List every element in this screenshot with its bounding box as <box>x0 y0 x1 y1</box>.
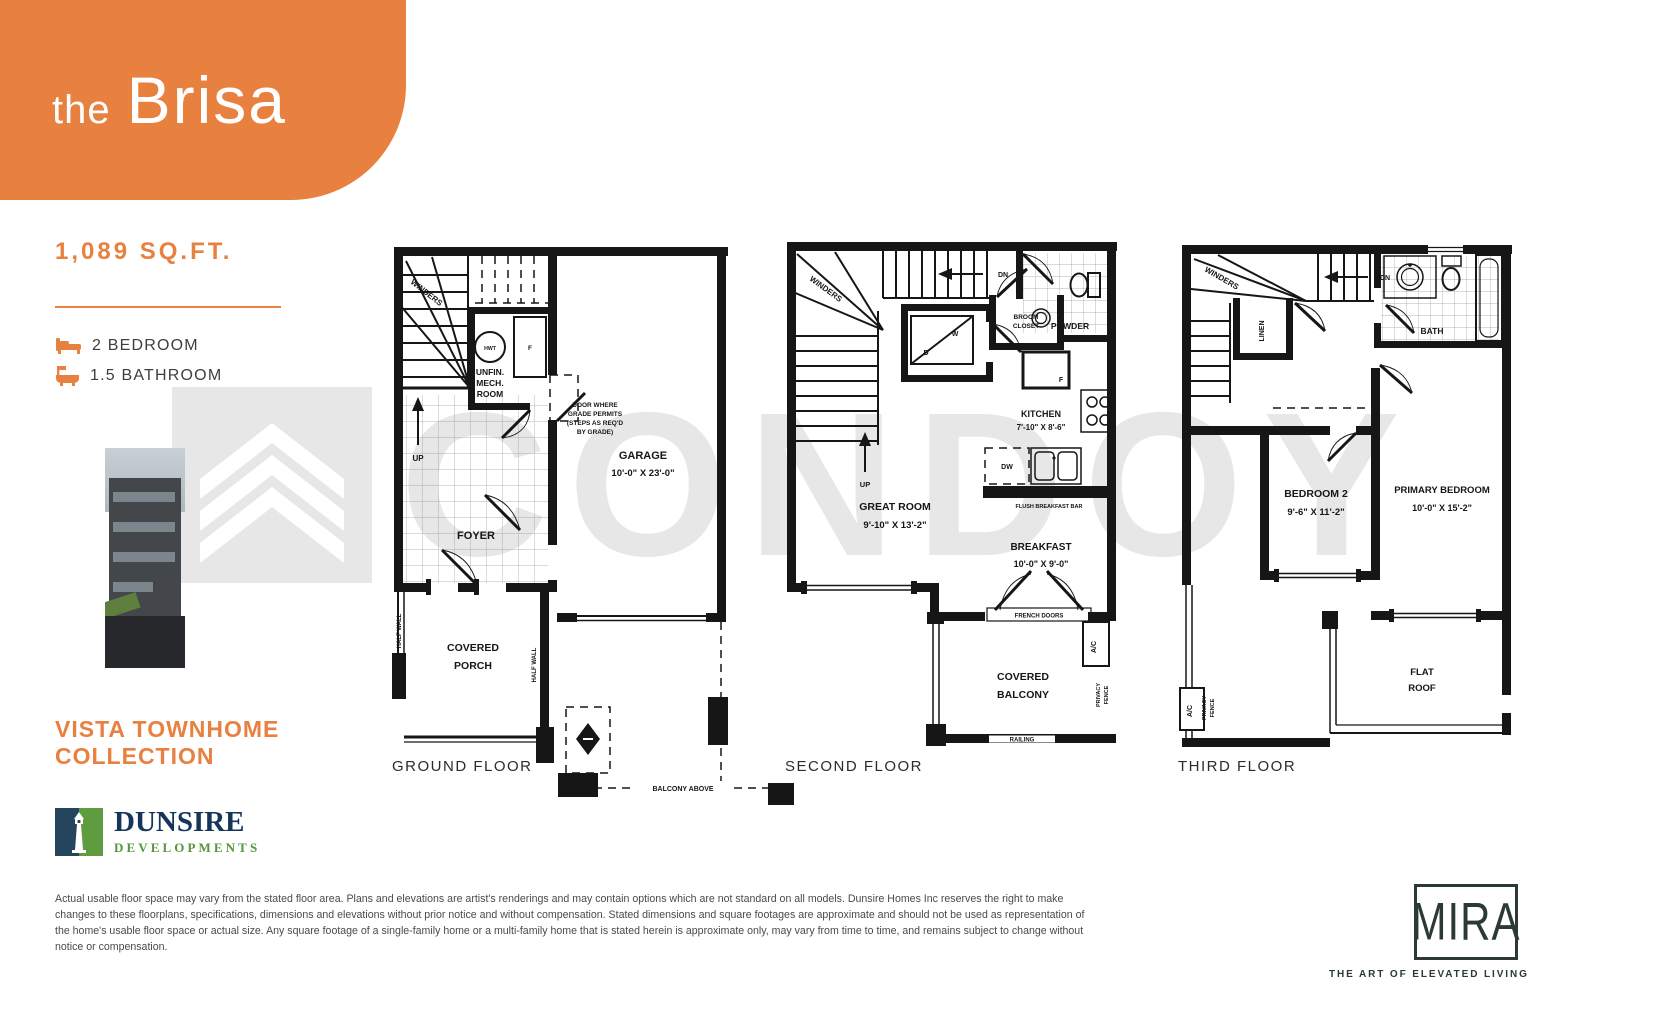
dn-label: DN <box>1380 275 1390 282</box>
covered-balcony: RAILING A/C PRIVACY FENCE COVERED BALCON… <box>926 612 1116 746</box>
up-label: UP <box>412 454 424 463</box>
linen-label: LINEN <box>1259 321 1266 342</box>
privacy-label-1: PRIVACY <box>1202 696 1208 720</box>
kitchen-dim: 7'-10" X 8'-6" <box>1017 423 1066 432</box>
second-floor-plan: DN WINDERS UP W D <box>783 240 1123 755</box>
balcony-label-2: BALCONY <box>997 689 1049 701</box>
ground-floor-caption: GROUND FLOOR <box>392 758 533 775</box>
grade-note-1: DOOR WHERE <box>572 402 618 409</box>
condoy-logo-icon <box>172 387 372 583</box>
balcony-above-label: BALCONY ABOVE <box>652 786 713 793</box>
fridge-label: F <box>1059 377 1064 384</box>
porch-label-1: COVERED <box>447 642 499 654</box>
kitchen-label: KITCHEN <box>1021 409 1061 419</box>
photo-window-band <box>113 522 175 532</box>
up-label: UP <box>860 480 870 489</box>
dryer-label: D <box>923 350 928 357</box>
square-footage: 1,089 SQ.FT. <box>55 238 232 266</box>
developer-wordmark: DUNSIRE DEVELOPMENTS <box>114 808 260 856</box>
second-stairs: DN WINDERS UP <box>793 251 1008 489</box>
primary-label: PRIMARY BEDROOM <box>1394 485 1490 496</box>
kitchen: F KITCHEN 7'-10" X 8'-6" DW FLUSH BREAKF… <box>983 352 1115 510</box>
bedroom-spec-label: 2 BEDROOM <box>92 337 199 355</box>
balcony-above-outline: BALCONY ABOVE <box>558 622 794 805</box>
bathroom-spec: 1.5 BATHROOM <box>55 365 222 386</box>
roof-strip: A/C PRIVACY FENCE <box>1180 585 1330 747</box>
mira-tagline: THE ART OF ELEVATED LIVING <box>1329 969 1529 980</box>
mech-label-3: ROOM <box>477 389 503 399</box>
developer-name: DUNSIRE <box>114 808 260 837</box>
privacy-label-2: FENCE <box>1104 685 1110 704</box>
photo-garage-base <box>105 616 185 668</box>
grade-note-4: BY GRADE) <box>577 429 613 436</box>
mira-tagline-row: THE ART OF ELEVATED LIVING <box>1322 969 1518 980</box>
mira-brand: MIRA THE ART OF ELEVATED LIVING <box>1322 884 1518 980</box>
mech-room: HWT F UNFIN. MECH. ROOM <box>475 317 546 399</box>
mira-logo-box: MIRA <box>1414 884 1518 960</box>
collection-line1: VISTA TOWNHOME <box>55 716 279 743</box>
primary-dim: 10'-0" X 15'-2" <box>1412 503 1472 513</box>
developer-subtitle: DEVELOPMENTS <box>114 840 260 856</box>
model-header: the Brisa <box>0 0 406 200</box>
privacy-label-1: PRIVACY <box>1096 683 1102 707</box>
garage-label: GARAGE <box>619 450 667 462</box>
balcony-label-1: COVERED <box>997 671 1049 683</box>
accent-divider <box>55 306 281 308</box>
second-floor-caption: SECOND FLOOR <box>785 758 923 775</box>
covered-porch: HALF WALL HALF WALL COVERED PORCH <box>392 592 554 763</box>
legal-disclaimer: Actual usable floor space may vary from … <box>55 892 1100 956</box>
brochure-page: CONDOY the Brisa 1,089 SQ.FT. 2 BEDROOM … <box>0 0 1680 1020</box>
breakfast-label: BREAKFAST <box>1010 542 1071 553</box>
grade-note-3: (STEPS AS REQ'D <box>567 420 624 427</box>
french-doors-label: FRENCH DOORS <box>1015 614 1064 620</box>
dunsire-lighthouse-icon <box>55 808 103 856</box>
mech-label-2: MECH. <box>476 378 503 388</box>
bathtub-icon <box>55 365 80 386</box>
model-title: the Brisa <box>52 62 287 138</box>
foyer-label: FOYER <box>457 530 495 542</box>
third-floor-caption: THIRD FLOOR <box>1178 758 1296 775</box>
flat-roof-label-2: ROOF <box>1408 683 1436 694</box>
flat-roof-label-1: FLAT <box>1410 667 1434 678</box>
developer-logo: DUNSIRE DEVELOPMENTS <box>55 808 260 856</box>
porch-label-2: PORCH <box>454 660 492 672</box>
great-room-dim: 9'-10" X 13'-2" <box>863 520 926 531</box>
bedroom-spec: 2 BEDROOM <box>55 336 199 355</box>
ground-floor-plan: UP WINDERS HWT F UNFIN. MECH. ROOM FOYER… <box>390 245 805 805</box>
ac-label: A/C <box>1187 705 1194 717</box>
flush-bar-label: FLUSH BREAKFAST BAR <box>1016 504 1083 510</box>
dishwasher-label: DW <box>1001 464 1013 471</box>
bathroom-spec-label: 1.5 BATHROOM <box>90 367 222 385</box>
mira-logo-text: MIRA <box>1412 892 1521 952</box>
bedroom2-dim: 9'-6" X 11'-2" <box>1287 507 1344 518</box>
half-wall-left-label: HALF WALL <box>397 613 403 648</box>
garage-dim: 10'-0" X 23'-0" <box>611 468 674 479</box>
privacy-label-2: FENCE <box>1210 698 1216 717</box>
ac-label: A/C <box>1091 641 1098 653</box>
bed-icon <box>55 336 82 355</box>
photo-window-band <box>113 552 175 562</box>
hwt-label: HWT <box>484 346 497 352</box>
bedroom2-label: BEDROOM 2 <box>1284 488 1348 500</box>
collection-line2: COLLECTION <box>55 743 279 770</box>
railing-label: RAILING <box>1010 738 1035 744</box>
bath-label: BATH <box>1421 326 1444 336</box>
powder-label: POWDER <box>1051 321 1089 331</box>
furnace-label: F <box>528 345 532 352</box>
grade-note-2: GRADE PERMITS <box>568 411 623 418</box>
breakfast-dim: 10'-0" X 9'-0" <box>1014 559 1069 569</box>
flat-roof: FLAT ROOF <box>1322 611 1511 735</box>
mech-label-1: UNFIN. <box>476 367 504 377</box>
great-room-label: GREAT ROOM <box>859 501 931 513</box>
photo-window-band <box>113 582 153 592</box>
half-wall-right-label: HALF WALL <box>532 647 538 682</box>
laundry-closet: W D <box>911 316 1021 364</box>
model-title-name: Brisa <box>127 62 287 138</box>
photo-window-band <box>113 492 175 502</box>
model-title-prefix: the <box>52 88 111 133</box>
third-floor-plan: DN WINDERS LINEN <box>1178 243 1518 753</box>
broom-label-1: BROOM <box>1014 314 1039 321</box>
washer-label: W <box>952 331 959 338</box>
elevation-photo <box>105 448 185 668</box>
french-doors: FRENCH DOORS <box>987 571 1091 621</box>
collection-title: VISTA TOWNHOME COLLECTION <box>55 716 279 770</box>
